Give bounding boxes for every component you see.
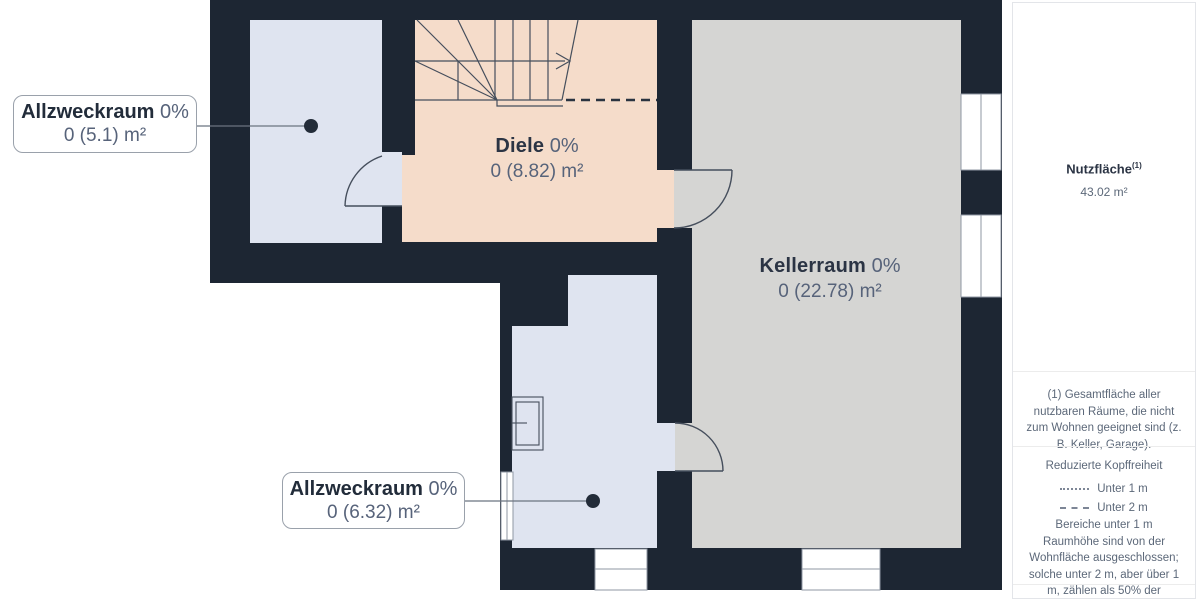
room-area-value: 0 (22.78) m²	[760, 281, 901, 303]
info-sidebar: Nutzfläche(1) 43.02 m² (1) Gesamtfläche …	[1012, 2, 1196, 599]
room-marker-dot	[304, 119, 318, 133]
room-marker-dot	[586, 494, 600, 508]
window-bottom-allzweck	[595, 549, 647, 590]
dotted-line-symbol	[1060, 488, 1089, 490]
legend-item-under-2m: Unter 2 m	[1013, 502, 1195, 514]
window-left-allzweck	[501, 472, 513, 540]
room-allzweckraum-top	[250, 20, 382, 243]
legend-note: Bereiche unter 1 m Raumhöhe sind von der…	[1013, 517, 1195, 600]
legend-label: Unter 1 m	[1097, 483, 1148, 495]
usable-area-value: 43.02 m²	[1013, 185, 1195, 199]
door-opening-bottom-keller-b	[675, 423, 692, 471]
room-area-value: 0 (5.1) m²	[14, 125, 196, 147]
callout-allzweckraum-top: Allzweckraum 0% 0 (5.1) m²	[13, 95, 197, 153]
legend-title: Reduzierte Kopffreiheit	[1013, 460, 1195, 472]
footnote-text: (1) Gesamtfläche aller nutzbaren Räume, …	[1013, 387, 1195, 453]
callout-allzweckraum-bottom: Allzweckraum 0% 0 (6.32) m²	[282, 472, 465, 529]
window-right-lower	[961, 215, 1001, 297]
floorplan-viewer: Diele 0% 0 (8.82) m² Kellerraum 0% 0 (22…	[0, 0, 1200, 600]
room-name: Allzweckraum	[290, 478, 423, 500]
room-name: Kellerraum	[760, 255, 867, 277]
room-percent: 0%	[160, 101, 189, 123]
sidebar-divider	[1013, 371, 1195, 372]
door-opening-diele-keller-a	[657, 170, 674, 228]
room-percent: 0%	[872, 255, 901, 277]
door-opening-top	[382, 152, 402, 206]
room-area-value: 0 (8.82) m²	[491, 161, 584, 183]
room-area-value: 0 (6.32) m²	[283, 502, 464, 524]
window-right-upper	[961, 94, 1001, 170]
room-label-diele: Diele 0% 0 (8.82) m²	[491, 135, 584, 183]
door-opening-diele-keller-b	[674, 170, 692, 228]
room-label-kellerraum: Kellerraum 0% 0 (22.78) m²	[760, 255, 901, 303]
dashed-line-symbol	[1060, 507, 1089, 509]
room-percent: 0%	[550, 135, 579, 157]
legend-item-under-1m: Unter 1 m	[1013, 483, 1195, 495]
usable-area-title: Nutzfläche(1)	[1013, 161, 1195, 176]
sidebar-divider	[1013, 446, 1195, 447]
legend-label: Unter 2 m	[1097, 502, 1148, 514]
door-opening-bottom-keller-a	[657, 423, 675, 471]
room-name: Allzweckraum	[21, 101, 154, 123]
room-name: Diele	[495, 135, 544, 157]
room-percent: 0%	[429, 478, 458, 500]
window-bottom-keller	[802, 549, 880, 590]
sidebar-divider	[1013, 584, 1195, 585]
footnote-marker: (1)	[1132, 161, 1142, 170]
